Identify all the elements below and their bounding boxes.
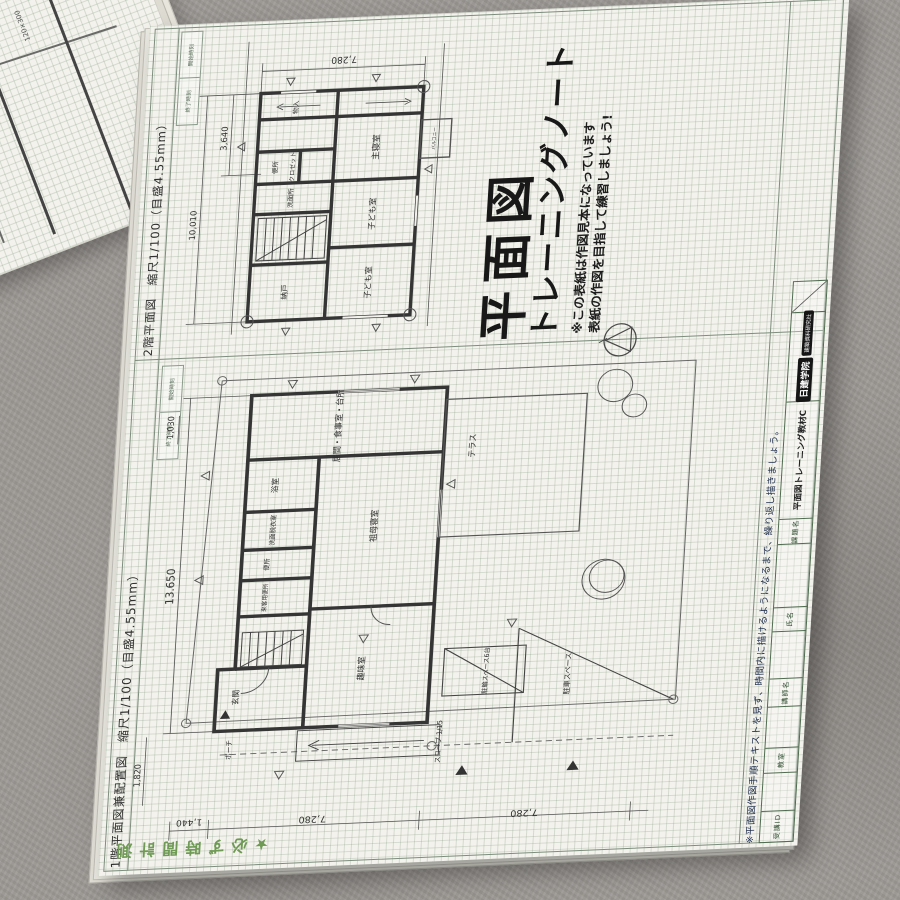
room-label-balcony: バルコニー	[431, 127, 438, 150]
plan1-dimension-lines	[140, 377, 675, 842]
car-parking	[512, 621, 678, 742]
room-label-child-room2: 子ども室	[362, 266, 374, 299]
plan2-floorplan: 7,280 3,640 10,010	[166, 11, 496, 358]
cover-sheet: 2階平面図 縮尺1/100（目盛4.55mm） 1階平面図兼配置図 縮尺1/10…	[98, 0, 849, 876]
room-label-washroom: 洗面脱衣室	[267, 514, 278, 546]
form-field-instructor	[770, 630, 806, 678]
plan1-dim-bottom-mid: 7,280	[298, 813, 326, 825]
form-label-name: 氏名	[784, 611, 795, 627]
school-logo: 日建学院	[796, 357, 814, 402]
form-label-course: 課題名	[789, 519, 800, 544]
course-value: 平面図トレーニング教材C	[790, 410, 808, 511]
plan2-dim-top: 7,280	[331, 53, 358, 64]
room-label-porch: ポーチ	[224, 740, 233, 760]
plan1-dim-bottom-right: 7,280	[510, 806, 538, 818]
tree-symbols	[581, 368, 649, 600]
plan2-walls	[247, 87, 424, 322]
site-boundary	[179, 356, 699, 761]
slope-ramp	[296, 725, 441, 762]
adjacent-dim-text: 120×300	[13, 9, 32, 42]
plan1-walls	[214, 387, 447, 732]
publisher-logo: 建築資料研究社	[801, 311, 814, 356]
room-label-toilet-2f: 便所	[270, 160, 280, 174]
plan1-room-labels: 居間・食事室・台所 テラス 浴室 洗面脱衣室 便所 来客用便所 玄関 祖母寝室 …	[224, 378, 591, 772]
terrace-outline	[438, 393, 587, 537]
room-label-bath: 浴室	[269, 478, 280, 494]
form-field-blank-slash	[792, 281, 827, 312]
room-label-storeroom: 納戸	[279, 284, 290, 300]
room-label-washroom-2f: 洗面所	[285, 188, 295, 209]
room-label-grandmother-bedroom: 祖母寝室	[368, 509, 380, 542]
form-label-classroom: 教室	[776, 752, 787, 768]
room-label-guest-toilet: 来客用便所	[260, 583, 270, 612]
room-label-parking: 駐車スペース	[562, 652, 574, 694]
cover-title-block: 平面図 トレーニングノート ※この表紙は作図見本になっています 表紙の作図を目指…	[477, 10, 709, 342]
training-note-pad: 2階平面図 縮尺1/100（目盛4.55mm） 1階平面図兼配置図 縮尺1/10…	[98, 0, 849, 876]
room-label-master-bedroom: 主寝室	[369, 133, 383, 160]
form-field-name	[774, 543, 811, 607]
plan2-dimension-lines	[185, 33, 445, 336]
form-label-student-id: 受講ID	[771, 814, 783, 840]
room-label-hobby-room: 趣味室	[355, 656, 367, 681]
form-field-classroom	[765, 706, 800, 748]
room-label-ldk: 居間・食事室・台所	[331, 389, 346, 463]
plan2-dim-left-upper: 3,640	[219, 126, 230, 151]
plan1-dim-left-total: 13.650	[163, 568, 179, 605]
room-label-toilet: 便所	[261, 558, 271, 571]
plan1-dim-top-left: 1,030	[165, 416, 177, 440]
plan2-dim-left-total: 10,010	[188, 210, 200, 240]
photo-of-training-notebook: { "cover": { "title_line1": "平面図", "titl…	[0, 0, 900, 900]
plan1-dim-bottom-left: 1,440	[175, 816, 202, 827]
room-label-closet: クロゼット	[288, 151, 298, 182]
plan1-floorplan: 13.650 1,030 1,820 1,440 7,280 7,280	[127, 333, 769, 853]
room-label-slope: スロープ 1/15	[434, 720, 445, 764]
plan1-stairs	[240, 630, 303, 667]
plan1-door-arcs	[241, 605, 392, 693]
room-label-bicycle: 駐輪スペース6台	[479, 647, 491, 694]
room-label-storage-small: 物入	[291, 100, 301, 114]
form-field-student-id	[762, 771, 797, 811]
plan1-dim-left-bottom: 1,820	[131, 764, 143, 788]
room-label-entrance: 玄関	[230, 690, 241, 706]
room-label-terrace: テラス	[466, 433, 478, 457]
form-label-instructor: 講師名	[780, 680, 791, 705]
solid-markers	[216, 695, 583, 786]
plan2-stairs	[256, 216, 327, 261]
room-label-child-room1: 子ども室	[366, 197, 378, 230]
